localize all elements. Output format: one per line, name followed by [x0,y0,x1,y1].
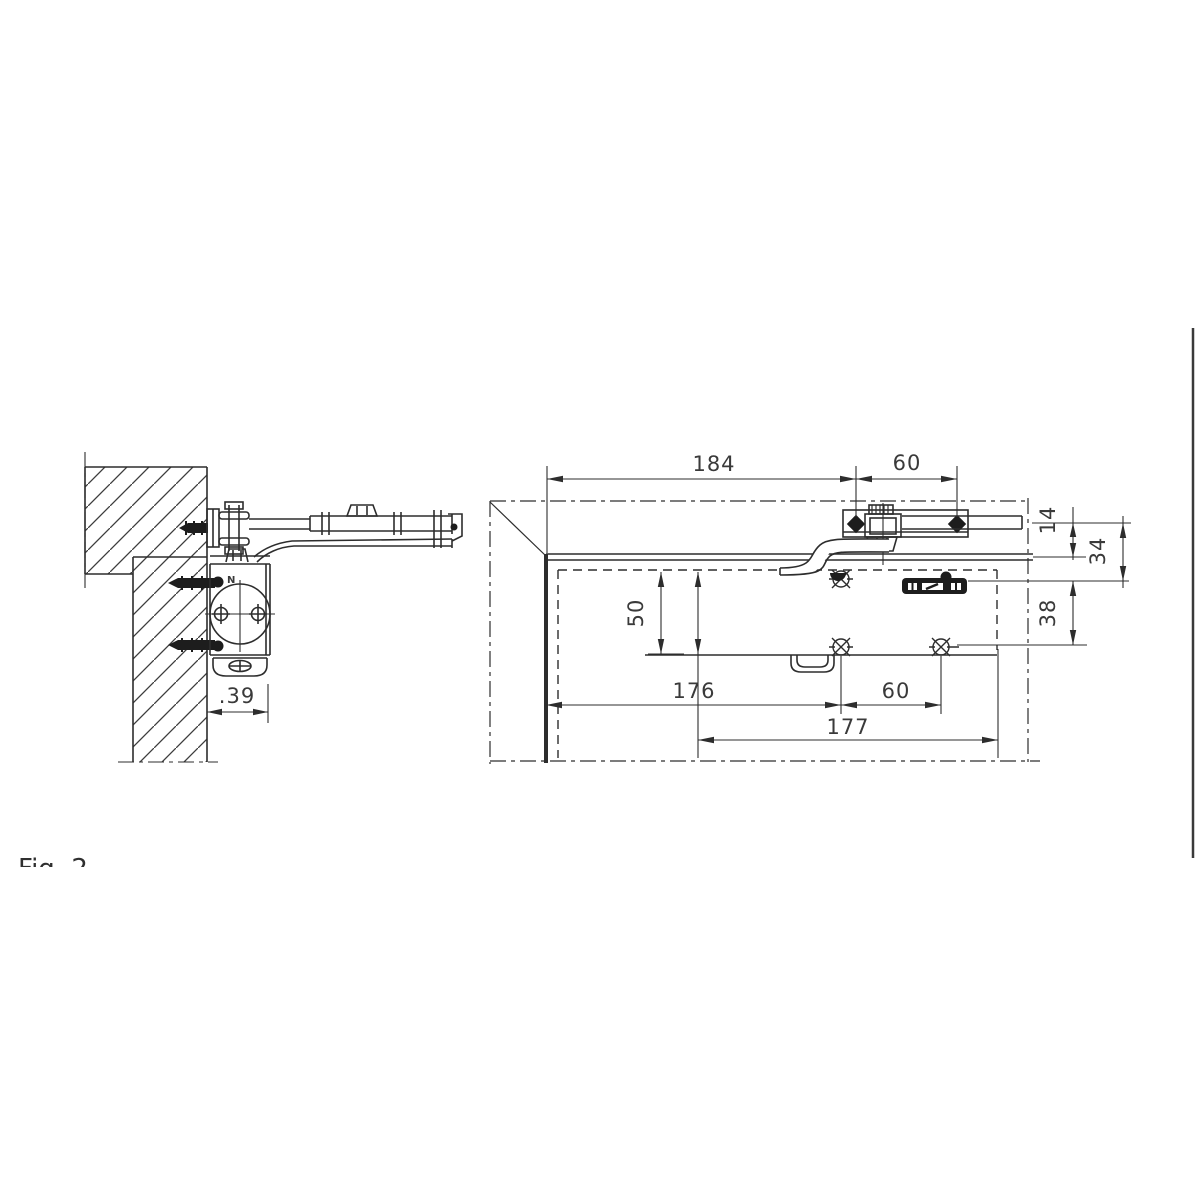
closer-hidden-outline [558,570,997,758]
dim-label-depth: .39 [219,684,255,708]
rod-lock-nut [347,505,377,516]
dim-label-body-height: 50 [624,599,648,628]
bottom-screw-cap [229,660,251,672]
scanned-technical-drawing-page: { "figure": { "caption": "Fig. 2" }, "si… [0,0,1200,1200]
dim-label-screw-row-spacing: 38 [1036,599,1060,628]
pinion-boss [791,655,834,672]
frame-phantom-outline [490,498,1040,764]
frame-bracket-plan [843,503,1022,565]
dim-label-rod-to-upper-screws: 34 [1086,537,1110,566]
main-arm-side [254,539,452,562]
wall-section-hatched [85,452,218,762]
dim-label-screw-spacing: 60 [882,679,911,703]
caption-clip-mask [0,867,170,907]
valve-label: N [227,575,235,586]
dim-label-rod-to-door-top: 14 [1036,506,1060,535]
screw-lower-right [929,638,959,656]
arm-rod-side [249,505,462,548]
valve-block [902,572,967,595]
frame-fork-bracket [207,502,249,554]
arm-shoe [865,503,901,565]
body-screw-left [212,604,230,624]
corner-diagonal [490,502,546,556]
valve-screw-top [213,577,224,588]
bracket-bolt-left [847,515,865,533]
dim-label-mounting-length: 177 [826,715,869,739]
dim-label-total-width: 184 [692,452,735,476]
screw-lower-left [829,638,853,656]
closer-body-side: N [205,549,275,676]
dim-label-door-edge-to-screws: 176 [672,679,715,703]
rod-end-hook [448,514,462,541]
side-view-section: N .39 [85,452,462,762]
valve-screw-bottom [213,641,224,652]
body-screw-right [249,604,267,624]
door-closer-technical-drawing: N .39 [0,0,1200,1200]
dim-label-bracket-bolt-spacing: 60 [893,451,922,475]
plan-view: 184 60 14 34 38 50 176 60 177 [490,451,1131,764]
bracket-bolt-right [948,515,966,533]
